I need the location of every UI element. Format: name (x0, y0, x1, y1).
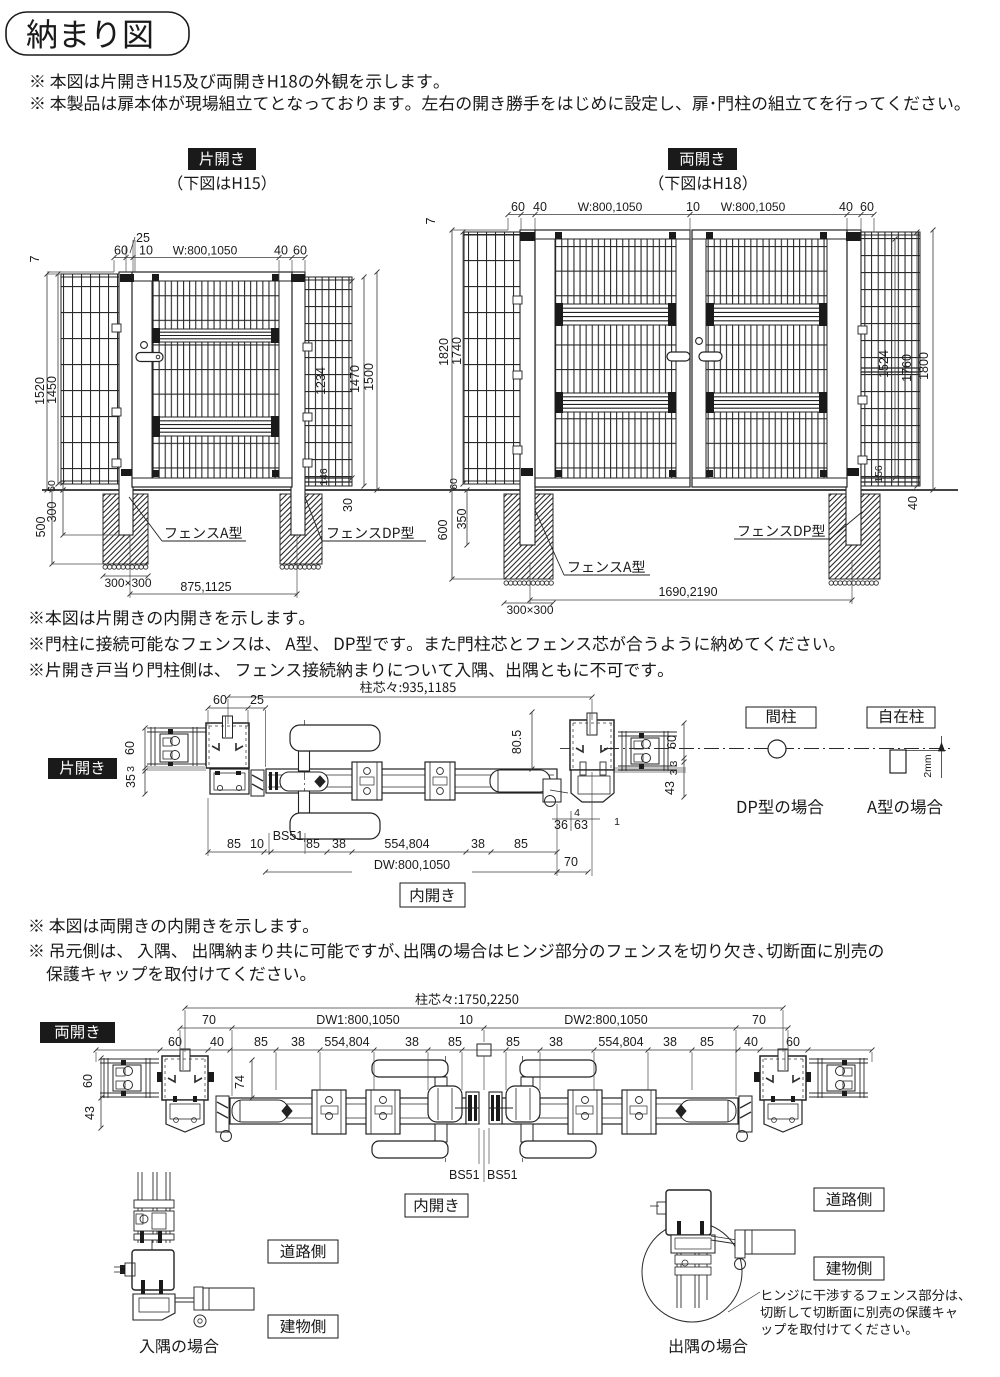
svg-text:85: 85 (700, 1035, 714, 1049)
svg-text:1: 1 (614, 816, 620, 828)
svg-text:500: 500 (34, 517, 48, 538)
svg-text:10: 10 (459, 1013, 473, 1027)
svg-text:3 3: 3 3 (668, 761, 680, 776)
svg-text:554,804: 554,804 (598, 1035, 643, 1049)
svg-text:1690,2190: 1690,2190 (658, 585, 717, 599)
svg-text:74: 74 (233, 1075, 247, 1089)
svg-text:300×300: 300×300 (104, 576, 151, 590)
svg-text:1500: 1500 (362, 363, 376, 391)
svg-text:10: 10 (250, 837, 264, 851)
svg-text:60: 60 (114, 244, 128, 258)
svg-text:85: 85 (506, 1035, 520, 1049)
svg-text:BS51: BS51 (273, 829, 304, 843)
svg-text:7: 7 (28, 255, 42, 262)
svg-text:554,804: 554,804 (324, 1035, 369, 1049)
svg-text:156: 156 (873, 465, 885, 483)
svg-text:1740: 1740 (450, 337, 464, 365)
svg-text:85: 85 (227, 837, 241, 851)
svg-text:63: 63 (574, 818, 588, 832)
svg-text:38: 38 (332, 837, 346, 851)
svg-text:W:800,1050: W:800,1050 (578, 200, 643, 214)
svg-text:2mm: 2mm (922, 754, 934, 778)
svg-text:85: 85 (306, 837, 320, 851)
svg-text:60: 60 (293, 244, 307, 258)
svg-text:DW:800,1050: DW:800,1050 (374, 858, 450, 872)
svg-text:7: 7 (424, 217, 438, 224)
svg-text:W:800,1050: W:800,1050 (173, 244, 238, 258)
svg-text:W:800,1050: W:800,1050 (721, 200, 786, 214)
svg-text:85: 85 (254, 1035, 268, 1049)
svg-text:350: 350 (455, 509, 469, 530)
svg-text:60: 60 (123, 741, 137, 755)
svg-text:875,1125: 875,1125 (180, 580, 231, 594)
svg-text:70: 70 (564, 855, 578, 869)
svg-text:85: 85 (514, 837, 528, 851)
svg-text:40: 40 (210, 1035, 224, 1049)
svg-text:38: 38 (291, 1035, 305, 1049)
svg-text:80.5: 80.5 (510, 730, 524, 754)
svg-text:1800: 1800 (917, 352, 931, 380)
svg-text:40: 40 (906, 496, 920, 510)
svg-text:40: 40 (533, 200, 547, 214)
svg-text:1760: 1760 (900, 354, 914, 382)
svg-text:38: 38 (471, 837, 485, 851)
svg-text:40: 40 (274, 244, 288, 258)
svg-text:38: 38 (549, 1035, 563, 1049)
svg-text:60: 60 (665, 735, 679, 749)
svg-text:35: 35 (124, 774, 138, 788)
svg-text:DW1:800,1050: DW1:800,1050 (316, 1013, 399, 1027)
svg-text:25: 25 (250, 693, 264, 707)
svg-text:146: 146 (318, 468, 330, 486)
svg-text:70: 70 (752, 1013, 766, 1027)
svg-text:300×300: 300×300 (506, 603, 553, 617)
svg-text:BS51: BS51 (449, 1168, 480, 1182)
svg-text:43: 43 (663, 781, 677, 795)
svg-text:30: 30 (341, 498, 355, 512)
svg-text:554,804: 554,804 (384, 837, 429, 851)
svg-text:1234: 1234 (314, 367, 328, 395)
svg-text:43: 43 (83, 1106, 97, 1120)
svg-text:38: 38 (405, 1035, 419, 1049)
svg-text:10: 10 (139, 244, 153, 258)
svg-text:BS51: BS51 (487, 1168, 518, 1182)
svg-text:38: 38 (663, 1035, 677, 1049)
svg-text:1820: 1820 (437, 338, 451, 366)
svg-text:1450: 1450 (45, 376, 59, 404)
svg-text:1470: 1470 (348, 365, 362, 393)
svg-text:85: 85 (448, 1035, 462, 1049)
svg-text:60: 60 (81, 1074, 95, 1088)
svg-text:60: 60 (511, 200, 525, 214)
svg-text:1524: 1524 (877, 350, 891, 378)
svg-text:DW2:800,1050: DW2:800,1050 (564, 1013, 647, 1027)
svg-text:40: 40 (744, 1035, 758, 1049)
svg-text:60: 60 (213, 693, 227, 707)
svg-text:3: 3 (125, 766, 137, 772)
svg-text:60: 60 (860, 200, 874, 214)
svg-text:40: 40 (839, 200, 853, 214)
svg-text:10: 10 (686, 200, 700, 214)
svg-text:36: 36 (554, 818, 568, 832)
svg-text:600: 600 (436, 520, 450, 541)
svg-text:70: 70 (202, 1013, 216, 1027)
